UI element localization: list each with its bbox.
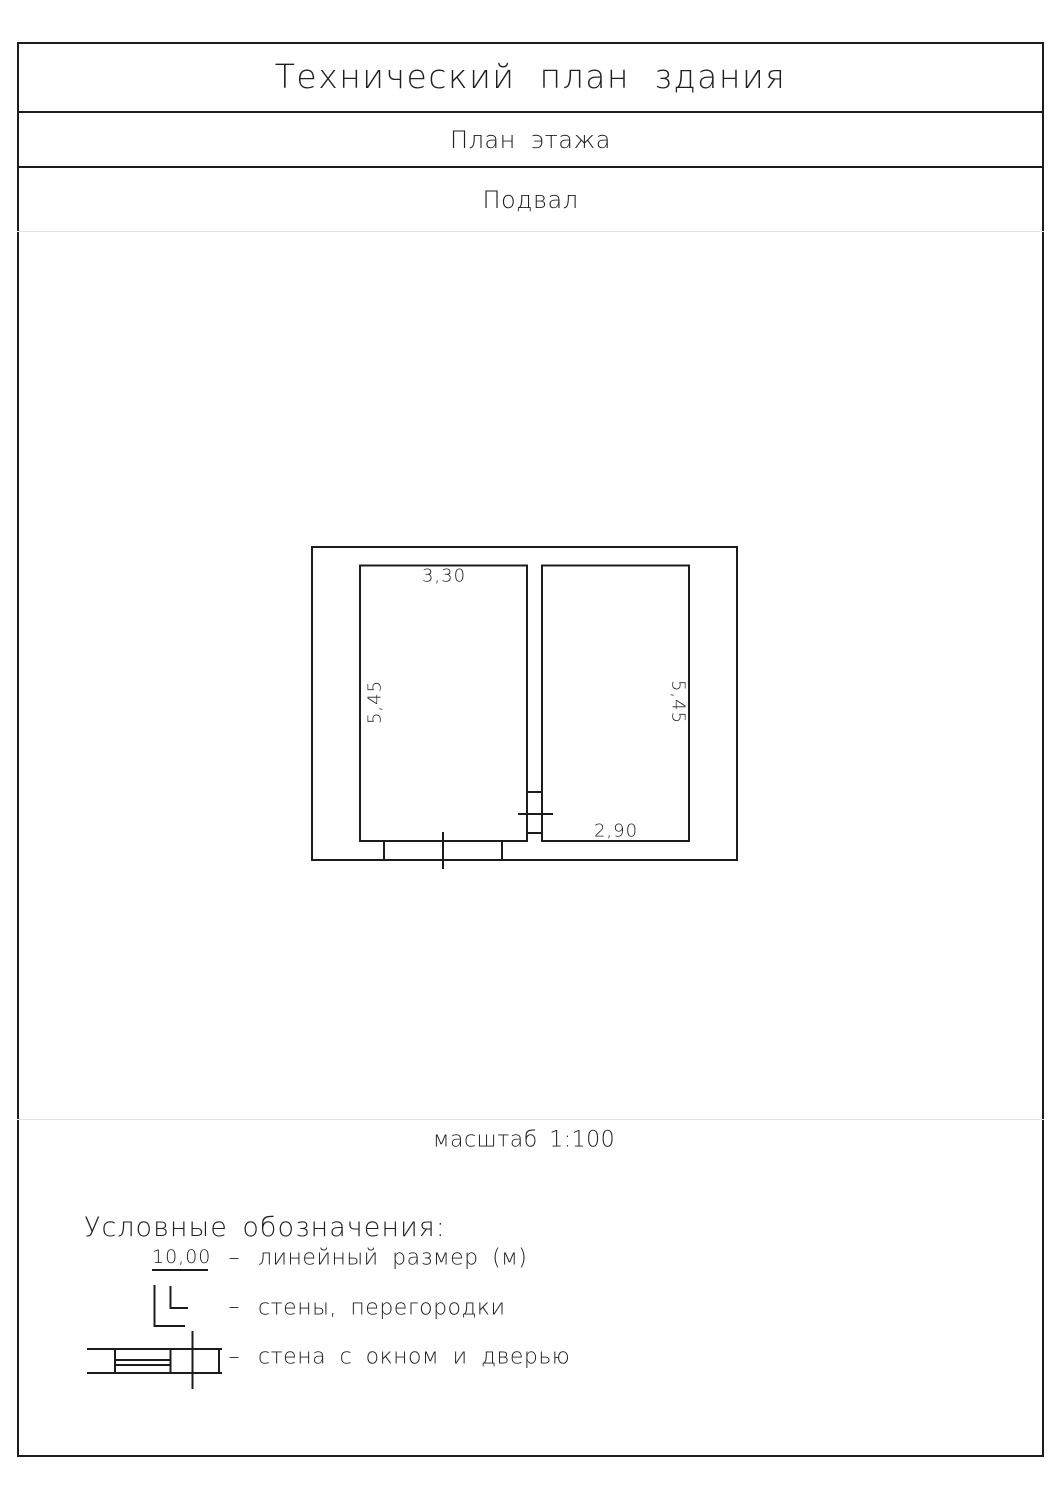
legend-label-walls: стены, перегородки (258, 1296, 505, 1321)
page-title: Технический план здания (275, 57, 787, 96)
divider-above-scale (17, 1119, 1044, 1120)
legend-dash: – (229, 1345, 240, 1370)
legend-label-linear-dimension: линейный размер (м) (258, 1246, 527, 1271)
page-subtitle: План этажа (450, 126, 611, 154)
floor-plan-drawing (290, 530, 770, 890)
linear-dimension-sample-icon: 10,00 (152, 1246, 208, 1271)
dimension-label-left-room-width: 3,30 (422, 566, 466, 587)
legend-heading: Условные обозначения: (84, 1212, 446, 1243)
dimension-label-left-room-height: 5,45 (365, 680, 386, 724)
dimension-label-right-room-width: 2,90 (594, 821, 638, 842)
dimension-label-right-room-height: 5,45 (668, 680, 689, 724)
divider-under-floor (17, 231, 1044, 232)
technical-plan-page: Технический план здания План этажа Подва… (0, 0, 1060, 1500)
subtitle-row: План этажа (17, 113, 1044, 166)
legend-dash: – (229, 1246, 240, 1271)
title-row: Технический план здания (17, 42, 1044, 111)
floor-label: Подвал (482, 186, 578, 214)
wall-window-door-icon (85, 1328, 225, 1392)
floor-row: Подвал (17, 168, 1044, 231)
walls-partitions-icon (150, 1280, 192, 1332)
legend-dash: – (229, 1295, 240, 1320)
scale-label: масштаб 1:100 (433, 1128, 615, 1153)
legend-label-wall-window-door: стена с окном и дверью (258, 1345, 570, 1370)
